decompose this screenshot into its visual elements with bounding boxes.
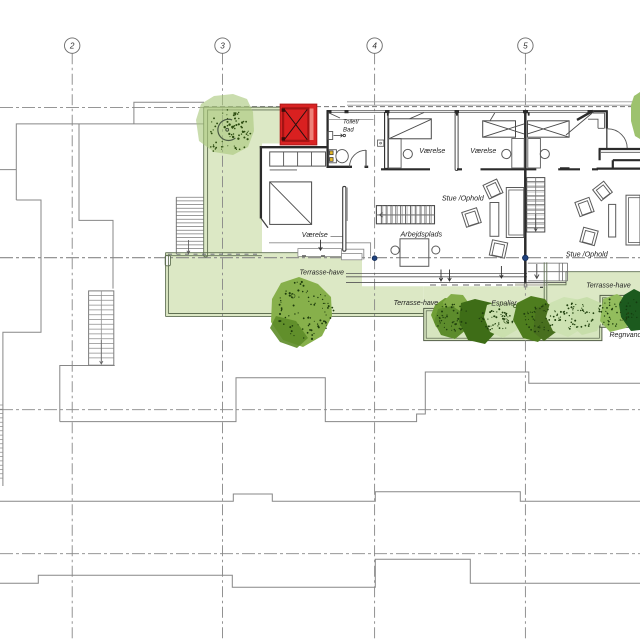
svg-text:Stue /Ophold: Stue /Ophold <box>566 249 609 258</box>
svg-text:Arbejdsplads: Arbejdsplads <box>400 230 443 239</box>
svg-text:Regnvandsbed: Regnvandsbed <box>610 332 640 339</box>
svg-text:Stue /Ophold: Stue /Ophold <box>442 194 485 203</box>
svg-text:5: 5 <box>523 42 528 51</box>
svg-text:Terrasse-have: Terrasse-have <box>394 300 439 307</box>
svg-text:Espalier: Espalier <box>491 301 517 308</box>
svg-text:3: 3 <box>220 42 225 51</box>
svg-text:Terrasse-have: Terrasse-have <box>300 269 345 276</box>
svg-text:Toilet/: Toilet/ <box>343 120 360 126</box>
svg-text:2: 2 <box>69 42 75 51</box>
svg-text:Bad: Bad <box>343 127 354 133</box>
svg-text:Værelse: Værelse <box>302 232 328 239</box>
svg-text:Værelse: Værelse <box>470 148 496 155</box>
svg-text:Terrasse-have: Terrasse-have <box>586 283 631 290</box>
svg-text:Værelse: Værelse <box>419 148 445 155</box>
svg-text:4: 4 <box>372 42 377 51</box>
